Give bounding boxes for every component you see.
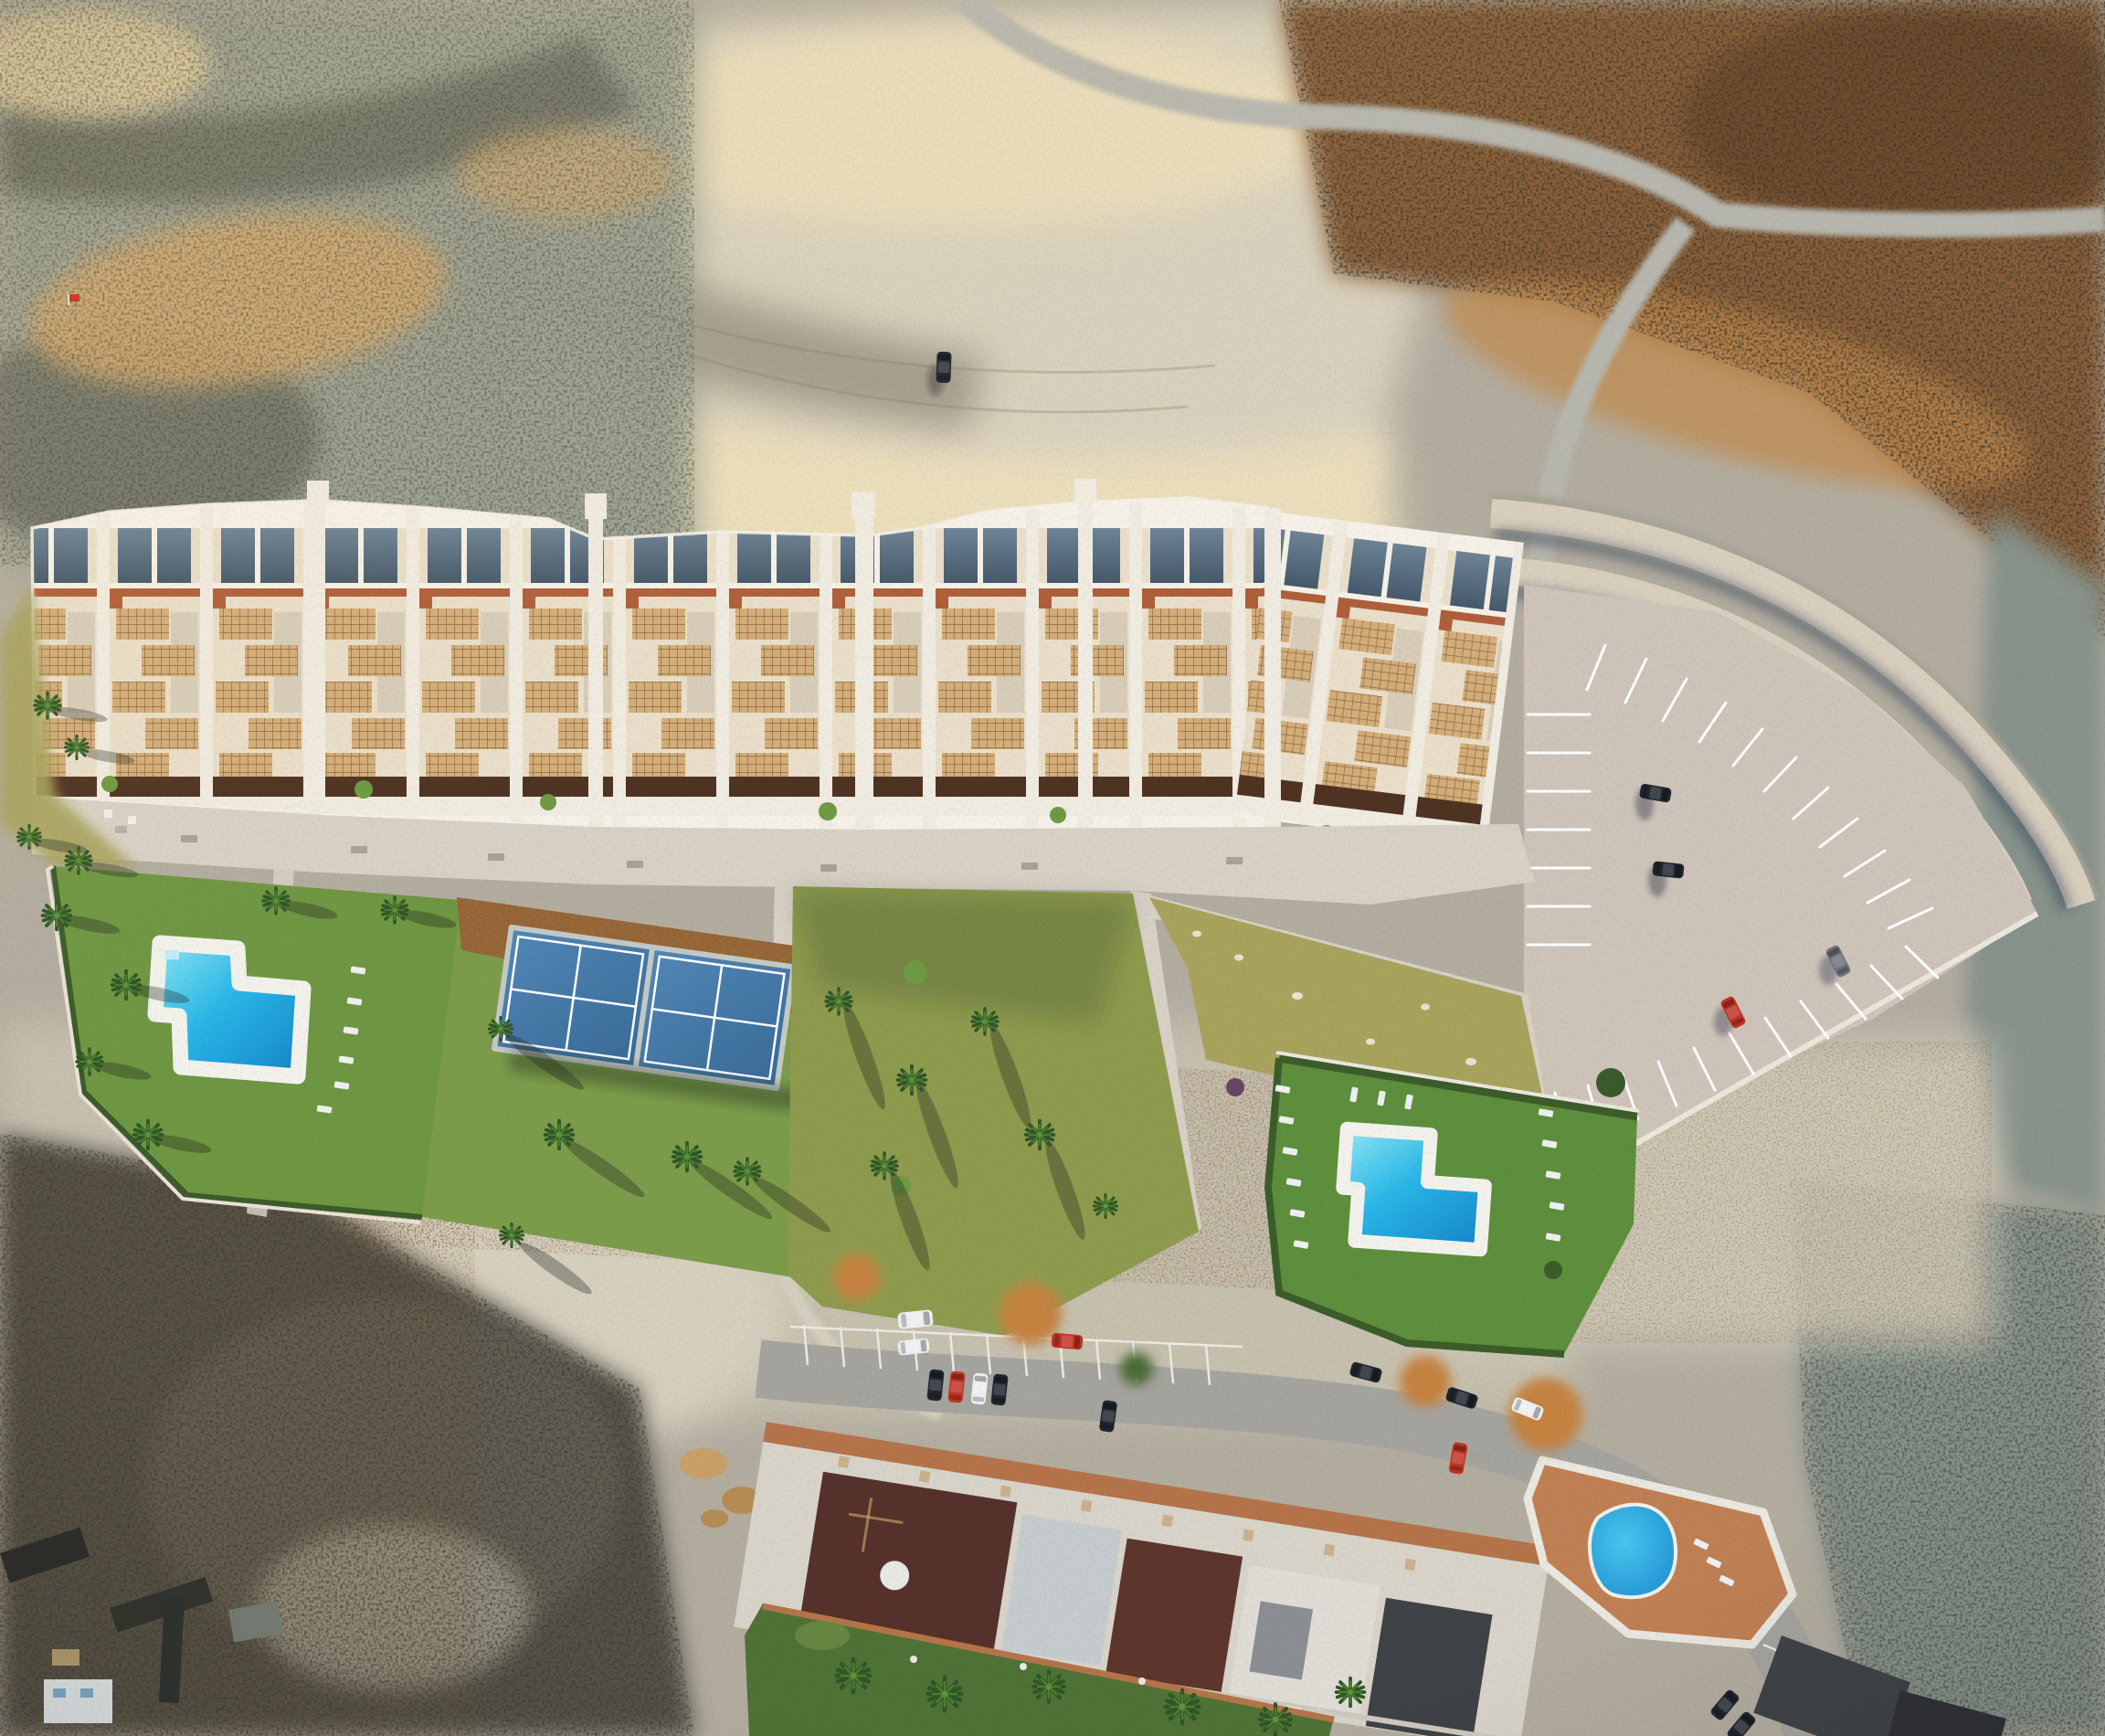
film-grain: [0, 0, 2105, 1736]
aerial-photo: Arid badlands terrain Brown scrubland: [0, 0, 2105, 1736]
